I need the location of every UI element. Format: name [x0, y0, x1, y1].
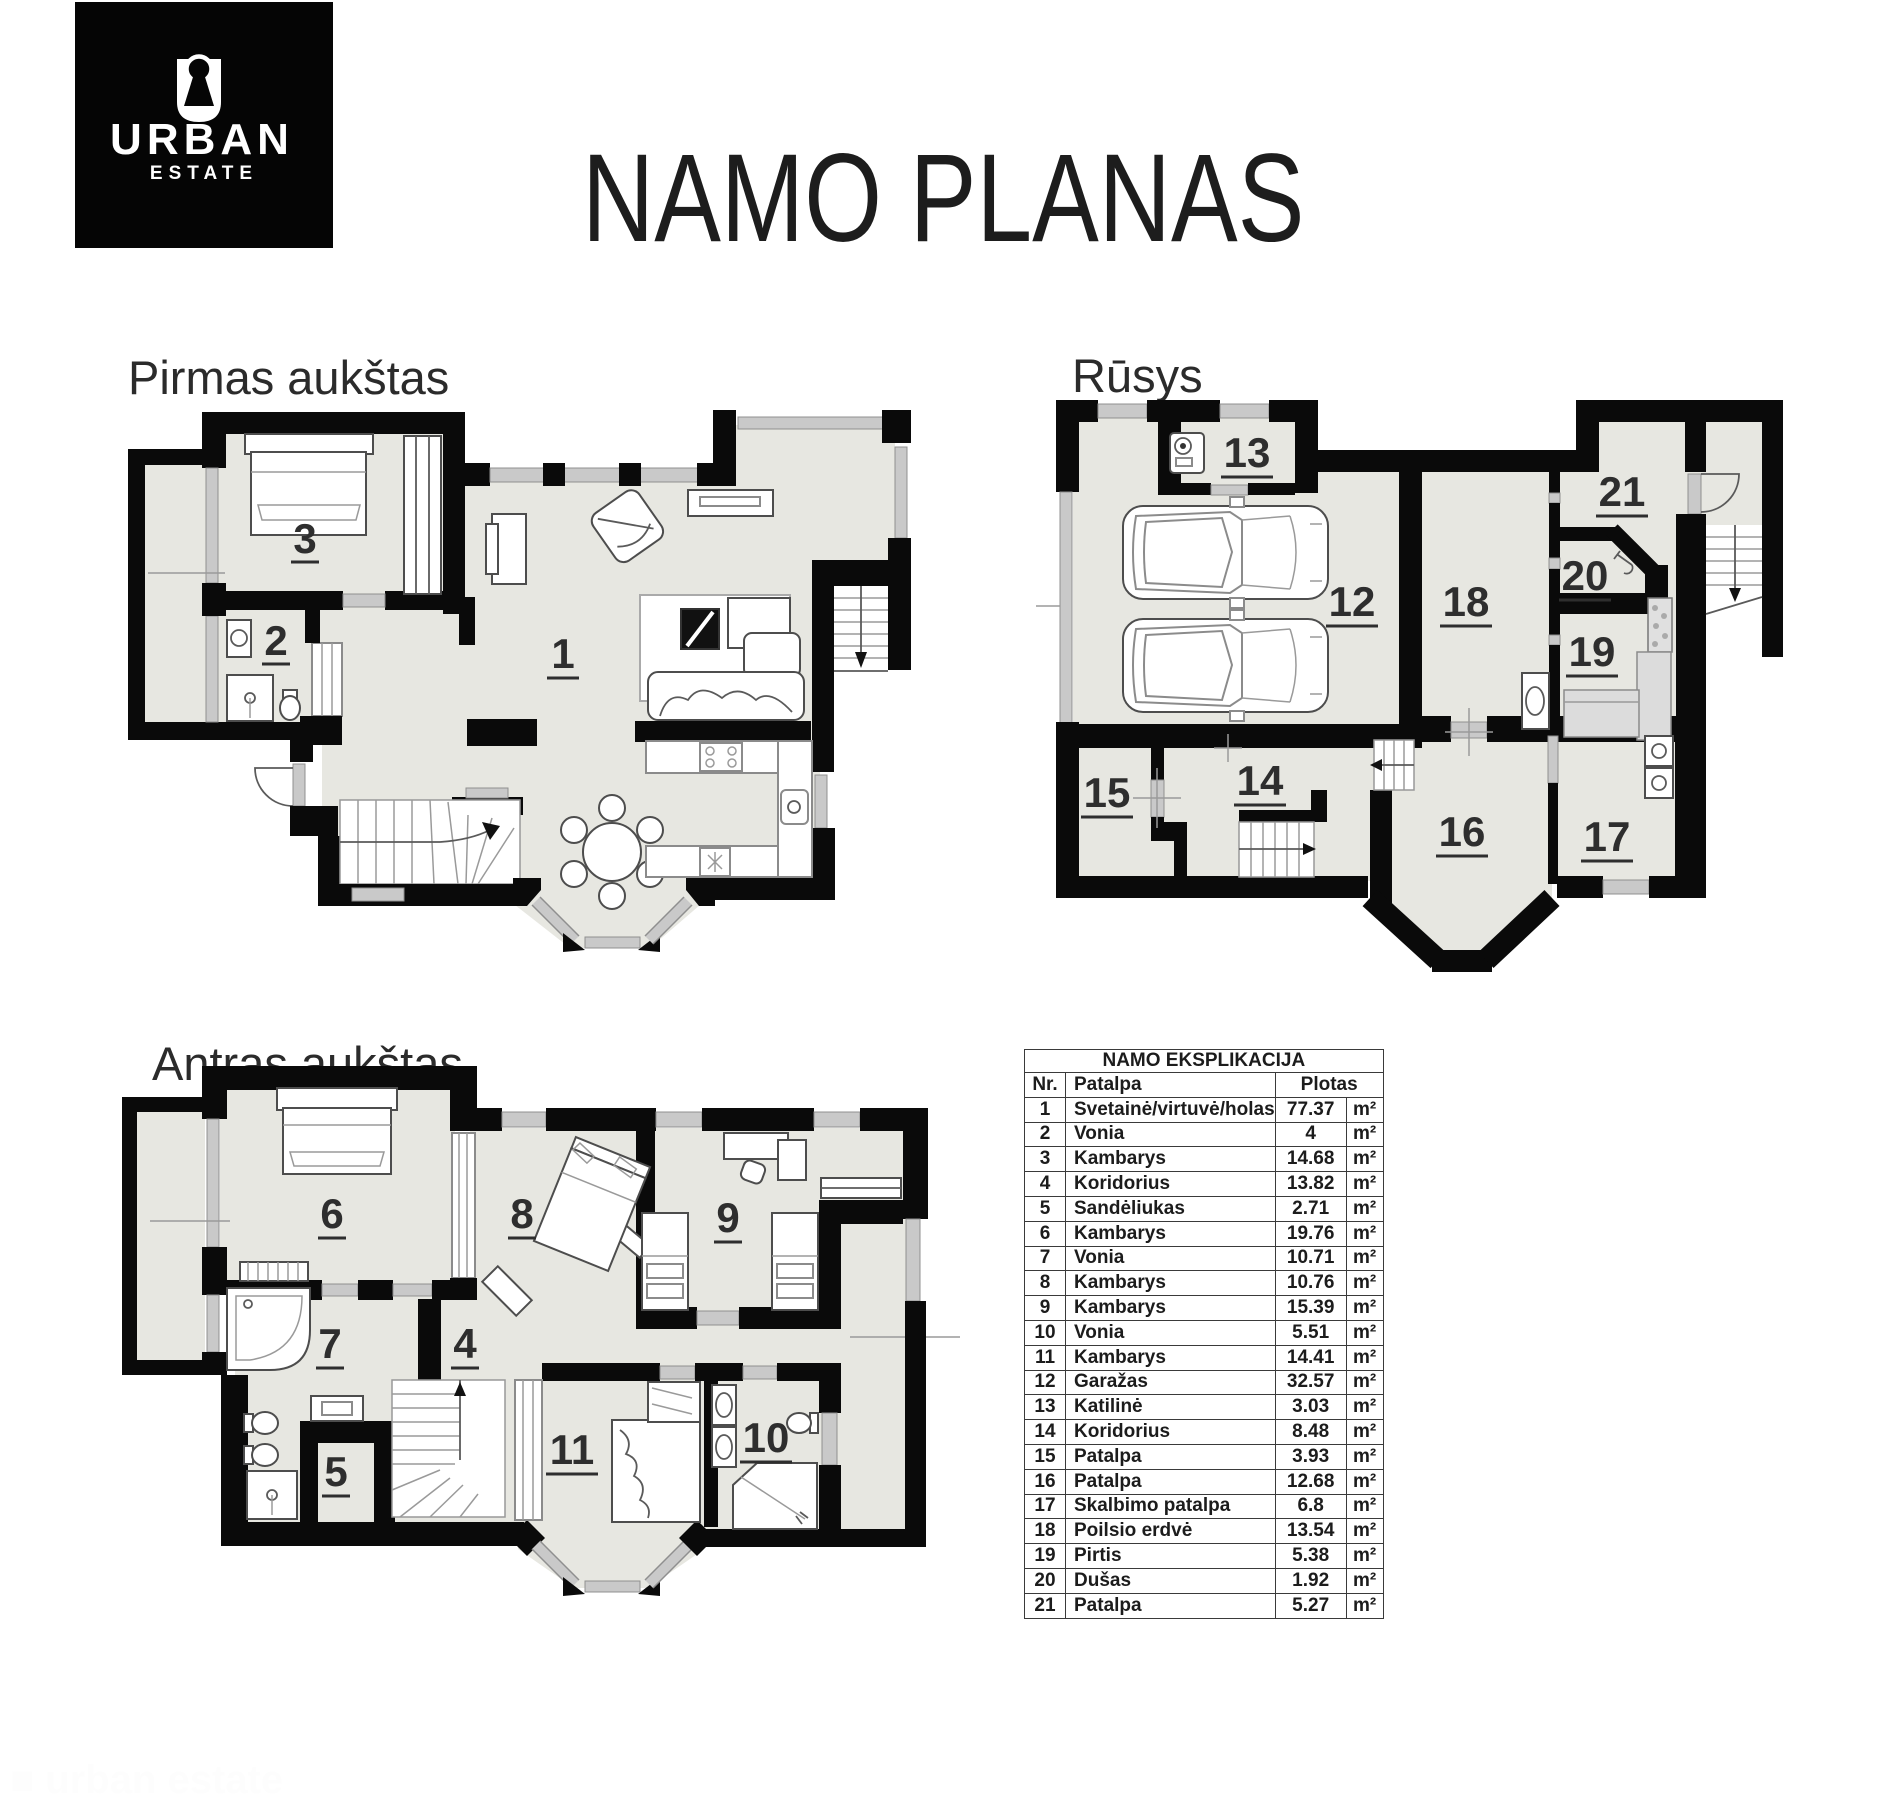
- svg-text:18: 18: [1443, 578, 1490, 625]
- svg-text:20: 20: [1562, 552, 1609, 599]
- svg-text:21: 21: [1599, 468, 1646, 515]
- svg-text:5: 5: [324, 1448, 347, 1495]
- svg-text:4: 4: [453, 1320, 477, 1367]
- svg-text:8: 8: [510, 1190, 533, 1237]
- svg-text:2: 2: [264, 617, 287, 664]
- svg-text:16: 16: [1439, 808, 1486, 855]
- svg-text:11: 11: [550, 1426, 594, 1473]
- svg-text:7: 7: [318, 1320, 341, 1367]
- svg-text:9: 9: [716, 1194, 739, 1241]
- svg-text:15: 15: [1084, 769, 1131, 816]
- svg-text:6: 6: [320, 1190, 343, 1237]
- svg-text:1: 1: [551, 630, 574, 677]
- svg-text:10: 10: [743, 1414, 790, 1461]
- svg-text:14: 14: [1237, 757, 1284, 804]
- svg-text:13: 13: [1224, 429, 1271, 476]
- svg-text:12: 12: [1329, 578, 1376, 625]
- svg-text:3: 3: [293, 515, 316, 562]
- svg-text:17: 17: [1584, 813, 1631, 860]
- svg-text:19: 19: [1569, 628, 1616, 675]
